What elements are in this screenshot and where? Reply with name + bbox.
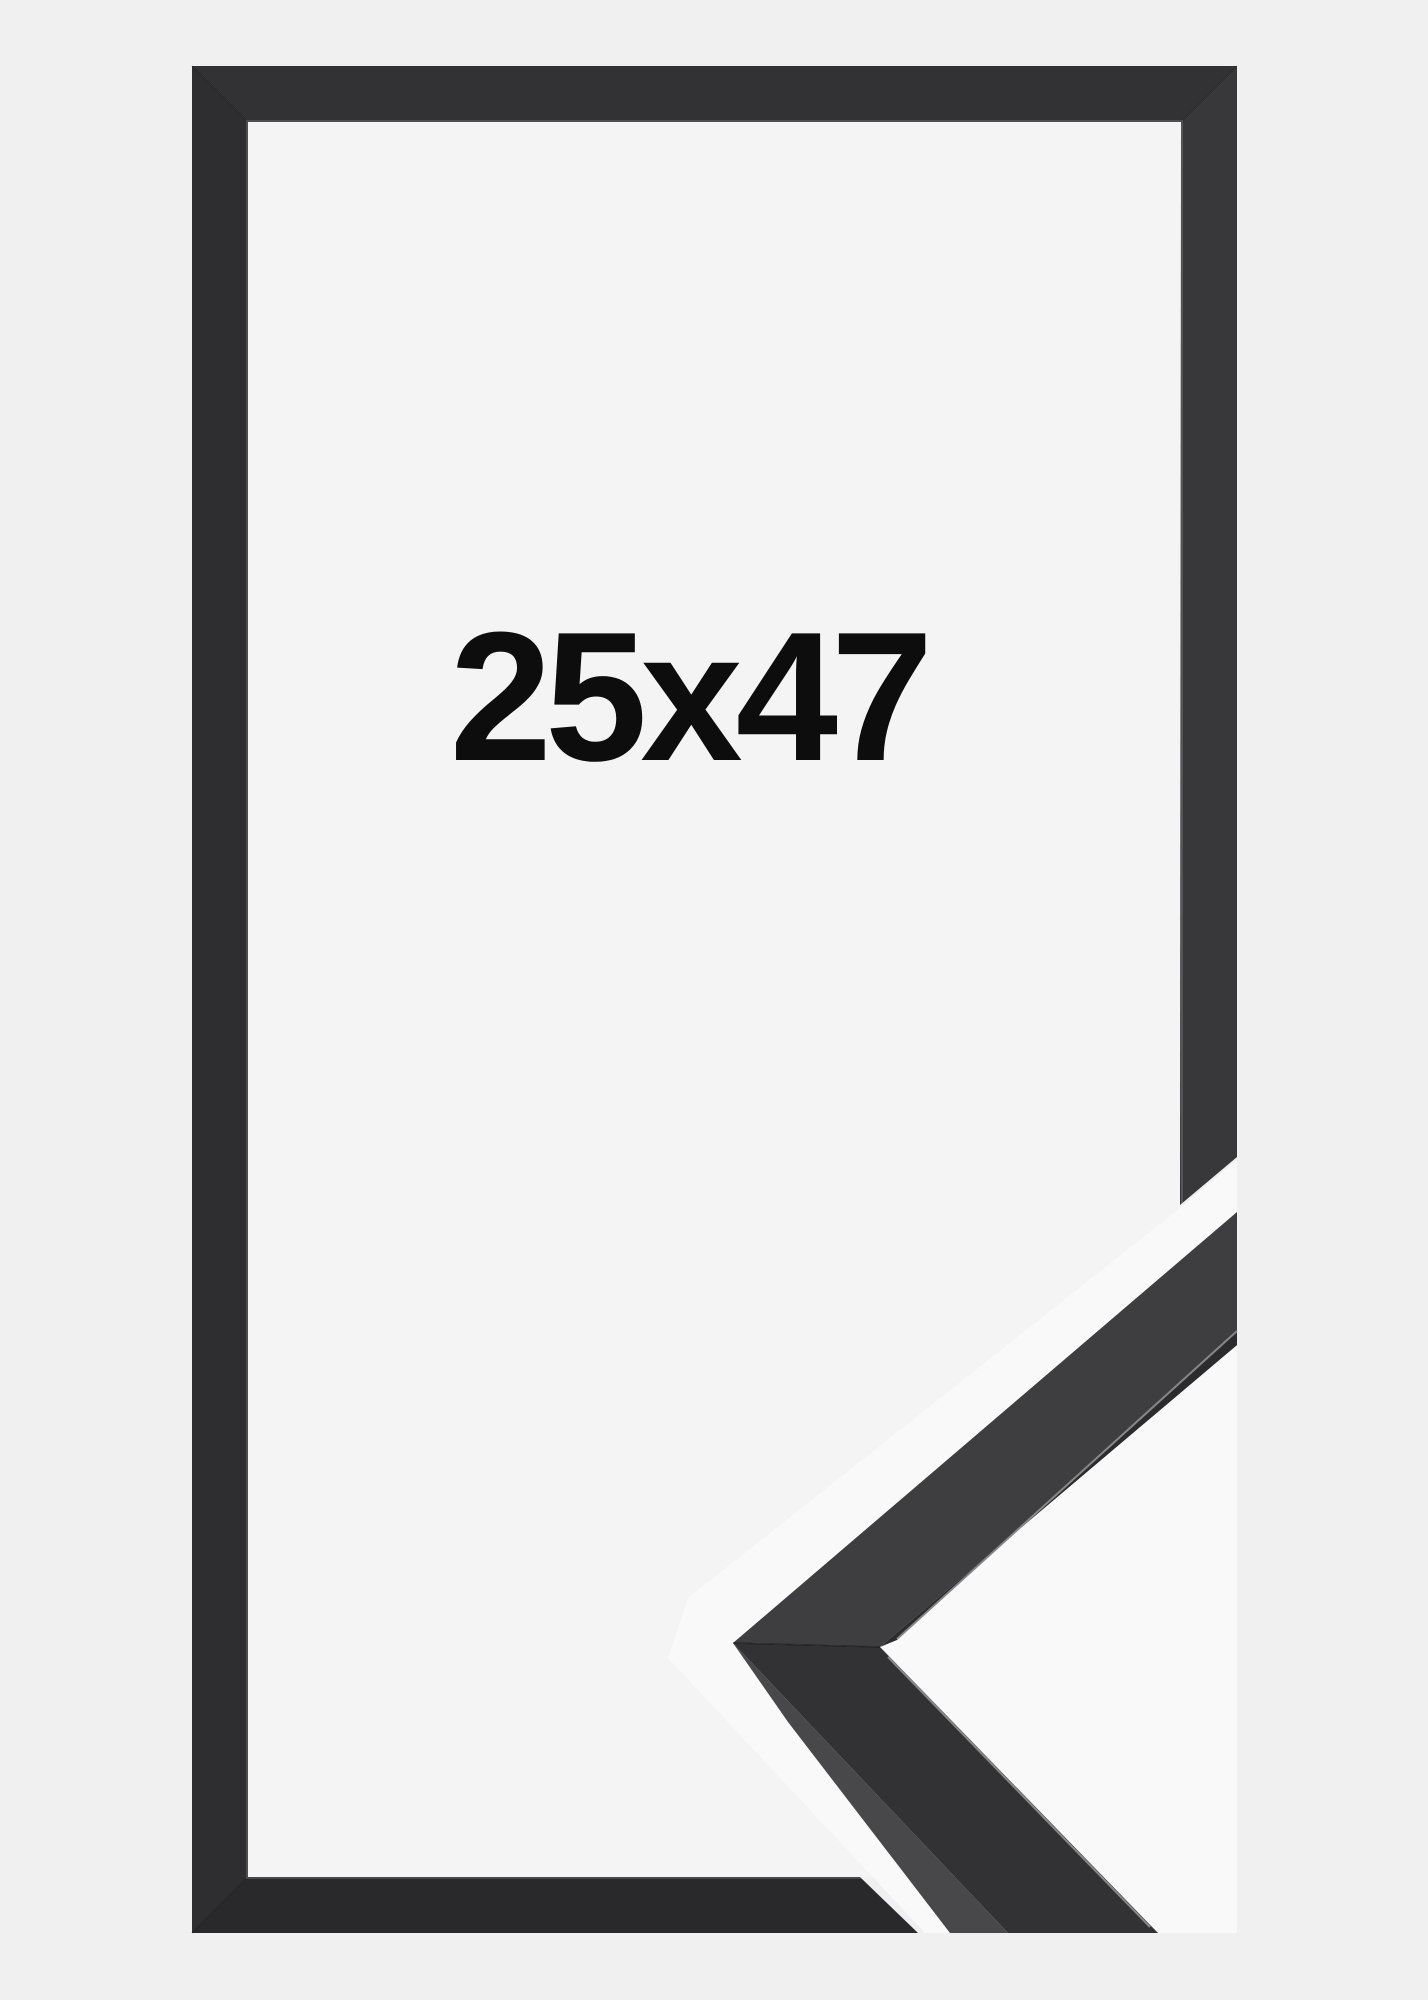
frame-top-bar — [192, 66, 1237, 122]
frame-left-bar — [192, 66, 248, 1933]
size-label: 25x47 — [450, 593, 927, 799]
frame-right-bar — [1180, 66, 1237, 1205]
frame-bottom-bar — [192, 1877, 918, 1933]
product-image: 25x47 — [0, 0, 1428, 2000]
